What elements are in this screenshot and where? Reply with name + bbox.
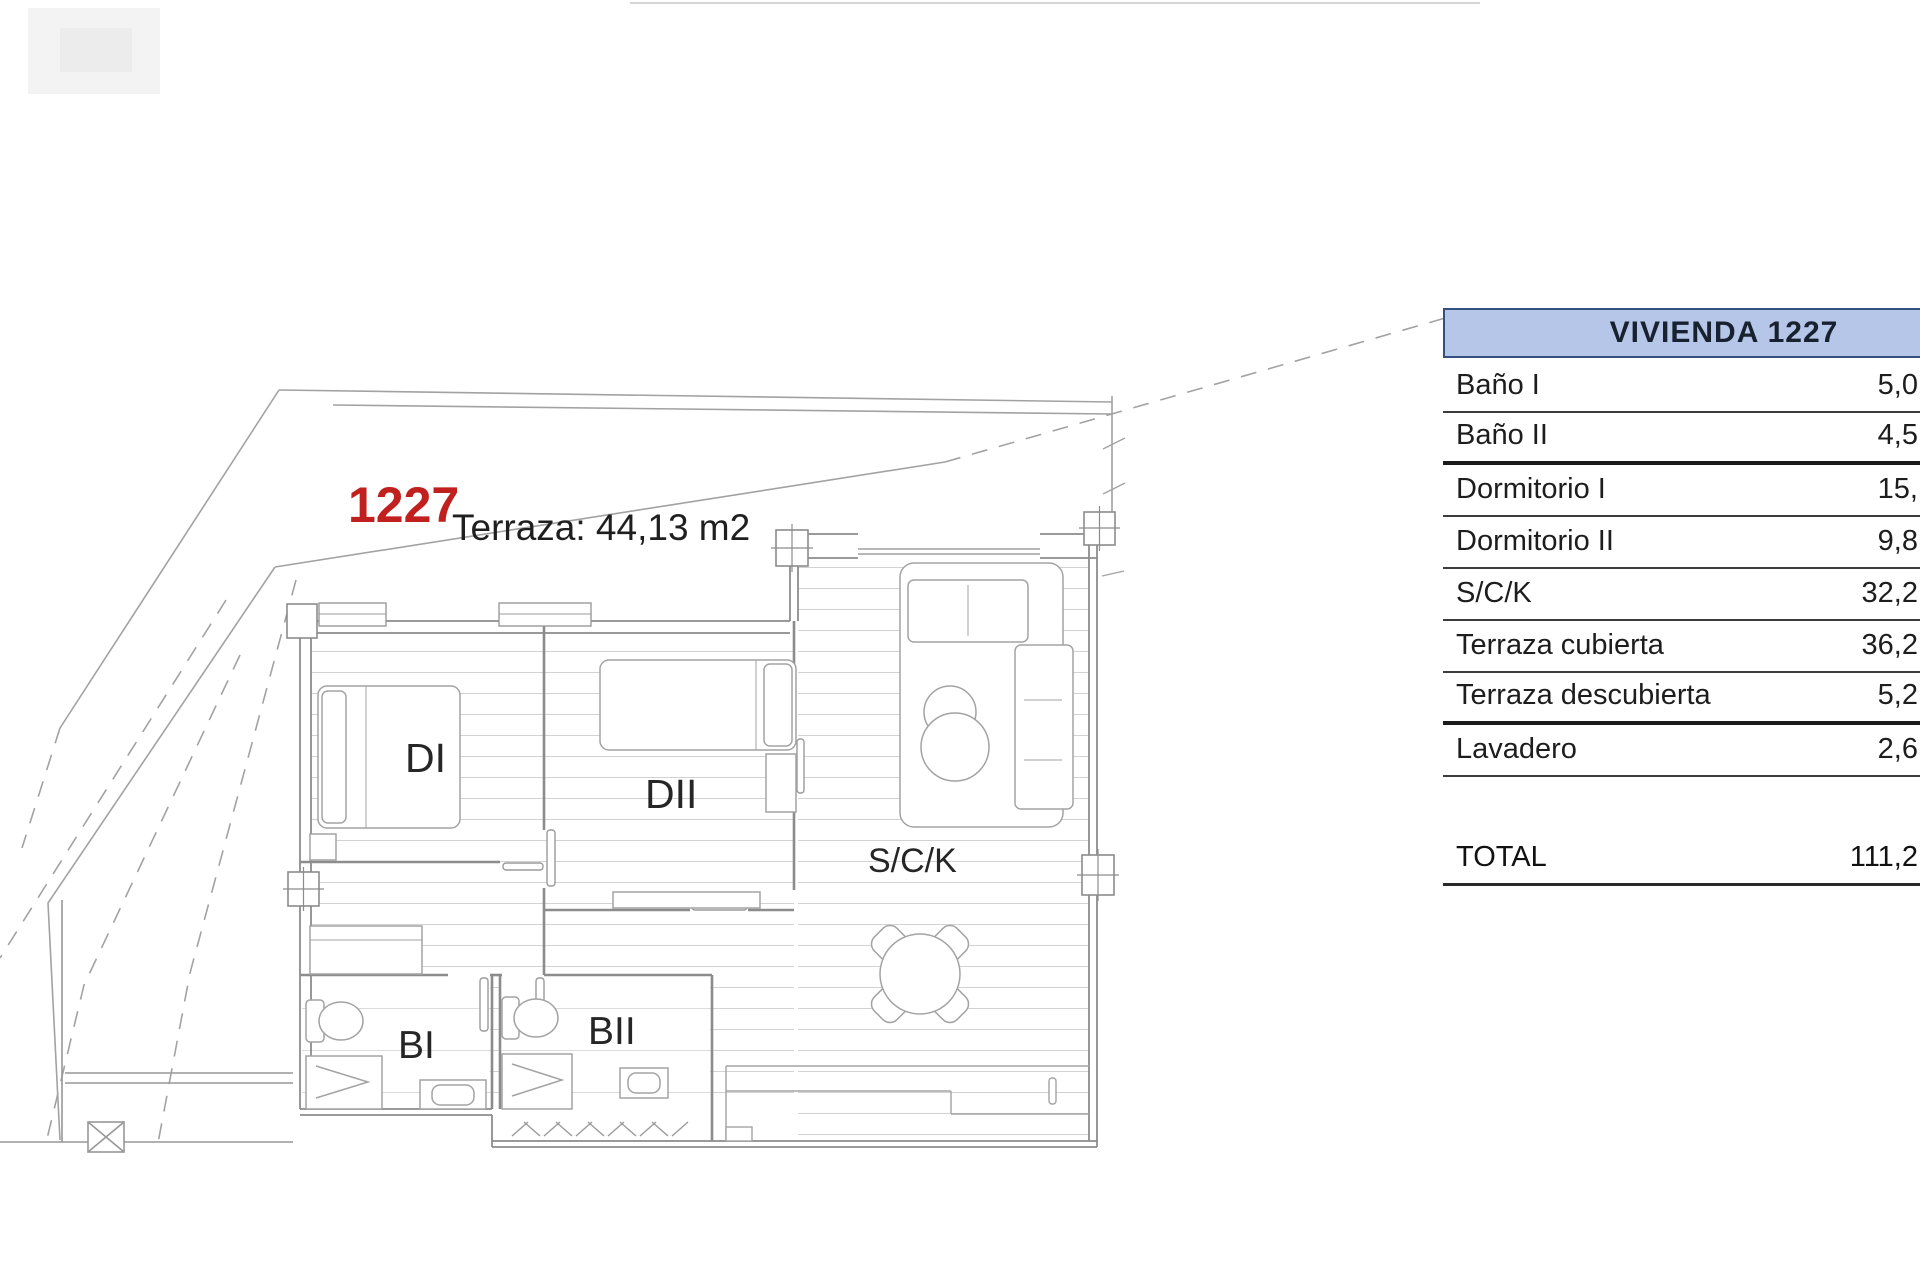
neighbor-structure [0,900,293,1152]
table-row: Dormitorio II 9,8 [1443,517,1920,569]
room-label-sck: S/C/K [868,842,957,880]
toilet-bowl-bii [514,999,558,1037]
room-area-value: 36,2 [1862,629,1918,662]
toilet-bowl-bi [319,1002,363,1040]
table-row: Dormitorio I 15, [1443,465,1920,517]
table-row: Terraza descubierta 5,2 [1443,673,1920,725]
sofa-side-cushion [1015,645,1073,809]
bench-dii [613,892,760,908]
room-label: Baño I [1456,369,1540,402]
total-area-value: 111,2 [1850,841,1918,874]
unit-number-label: 1227 [348,477,459,533]
nightstand-dii [766,754,796,812]
vent-hatch-strip [512,1122,688,1136]
table-row: Lavadero 2,6 [1443,725,1920,777]
nightstand-di [310,834,336,860]
terrace-area-label: Terraza: 44,13 m2 [452,507,750,548]
room-area-value: 32,2 [1862,577,1918,610]
room-area-value: 15, [1878,473,1918,506]
room-area-value: 5,0 [1878,369,1918,402]
room-label-di: DI [405,735,446,781]
areas-table-header: VIVIENDA 1227 [1443,308,1920,358]
areas-table-rows: Baño I 5,0 Baño II 4,5 Dormitorio I 15, … [1443,361,1920,886]
table-row: S/C/K 32,2 [1443,569,1920,621]
room-label: Baño II [1456,419,1548,452]
total-label: TOTAL [1456,841,1547,874]
room-label: S/C/K [1456,577,1532,610]
dining-table [880,934,960,1014]
pillow-dii [764,664,792,746]
room-label: Dormitorio II [1456,525,1614,558]
window-sills [319,603,591,626]
pillow-di [322,691,346,823]
shower-bii [502,1054,572,1109]
hall-closet [310,926,422,974]
table-row: Baño I 5,0 [1443,361,1920,413]
shower-bi [306,1056,382,1109]
room-label-dii: DII [645,771,697,817]
room-area-value: 5,2 [1878,679,1918,712]
table-row: Terraza cubierta 36,2 [1443,621,1920,673]
room-label: Dormitorio I [1456,473,1606,506]
table-total-row: TOTAL 111,2 [1443,834,1920,886]
room-label: Terraza cubierta [1456,629,1664,662]
room-area-value: 9,8 [1878,525,1918,558]
room-label-bi: BI [398,1024,435,1067]
room-area-value: 2,6 [1878,733,1918,766]
dining-set [867,921,972,1026]
room-label: Terraza descubierta [1456,679,1711,712]
table-row: Baño II 4,5 [1443,413,1920,465]
armchair [921,713,989,781]
room-label-bii: BII [588,1010,636,1053]
faint-neighbor-fragment [28,3,1480,94]
room-area-value: 4,5 [1878,419,1918,452]
areas-table: VIVIENDA 1227 Baño I 5,0 Baño II 4,5 Dor… [1443,308,1920,948]
room-label: Lavadero [1456,733,1577,766]
